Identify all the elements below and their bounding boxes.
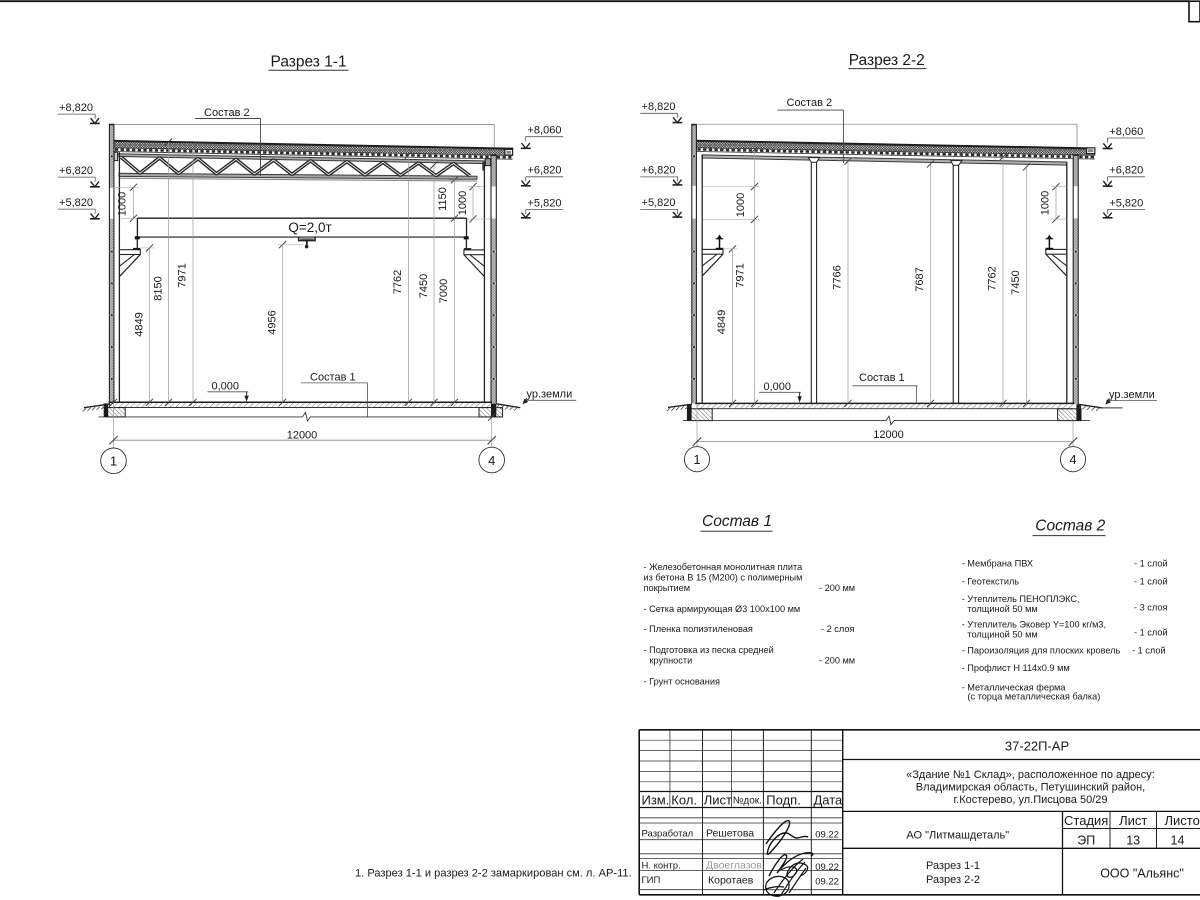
svg-text:№док.: №док. [733,796,762,807]
svg-text:из бетона В 15 (М200) с полиме: из бетона В 15 (М200) с полимерным [644,573,803,583]
svg-text:7971: 7971 [177,263,189,287]
svg-text:+5,820: +5,820 [528,197,562,209]
svg-text:толщиной 50 мм: толщиной 50 мм [967,630,1037,640]
svg-text:+8,060: +8,060 [1109,126,1143,138]
svg-text:7450: 7450 [418,274,430,298]
svg-text:- 3 слоя: - 3 слоя [1134,603,1167,613]
svg-text:ур.земли: ур.земли [527,389,573,401]
svg-text:7687: 7687 [914,267,926,291]
svg-text:Состав 1: Состав 1 [702,513,772,530]
svg-text:Разрез 1-1: Разрез 1-1 [926,860,980,872]
svg-text:7450: 7450 [1010,270,1022,294]
svg-text:Состав 2: Состав 2 [787,97,833,109]
svg-text:- 200 мм: - 200 мм [819,656,855,666]
svg-text:(с торца металлическая балка): (с торца металлическая балка) [967,692,1100,702]
svg-text:Решетова: Решетова [706,827,754,839]
svg-text:Кол.: Кол. [671,792,697,807]
svg-text:Лист: Лист [1119,813,1147,828]
svg-text:Состав 2: Состав 2 [204,107,250,119]
svg-text:Разрез 1-1: Разрез 1-1 [271,54,347,71]
svg-text:Листов: Листов [1165,813,1200,828]
svg-text:Разрез 2-2: Разрез 2-2 [926,874,980,886]
svg-text:г.Костерево, ул.Писцова 50/29: г.Костерево, ул.Писцова 50/29 [954,794,1108,806]
svg-text:Н. контр.: Н. контр. [642,861,681,872]
svg-text:Разработал: Разработал [642,828,694,839]
svg-text:покрытием: покрытием [644,583,691,593]
svg-text:Лист: Лист [704,792,732,807]
svg-text:- Пленка полиэтиленовая: - Пленка полиэтиленовая [644,624,753,634]
svg-text:14: 14 [1171,833,1185,847]
svg-text:- 1 слой: - 1 слой [1134,577,1168,587]
svg-text:Q=2,0т: Q=2,0т [288,220,331,235]
svg-text:09.22: 09.22 [815,876,839,887]
svg-text:ур.земли: ур.земли [1109,389,1155,401]
svg-text:+8,060: +8,060 [528,125,562,137]
svg-text:- 2 слоя: - 2 слоя [821,624,854,634]
svg-text:Владимирская область, Петушинс: Владимирская область, Петушинский район, [916,781,1145,793]
svg-text:+5,820: +5,820 [642,197,676,209]
svg-text:ГИП: ГИП [642,875,661,886]
svg-text:1150: 1150 [437,187,449,211]
svg-text:- Сетка армирующая Ø3 100x100: - Сетка армирующая Ø3 100x100 мм [644,604,801,614]
svg-text:+6,820: +6,820 [528,165,562,177]
svg-text:4956: 4956 [267,310,279,334]
svg-text:0,000: 0,000 [212,380,240,392]
svg-text:- Утеплитель ПЕНОПЛЭКС,: - Утеплитель ПЕНОПЛЭКС, [962,594,1080,604]
svg-text:+6,820: +6,820 [59,165,93,177]
svg-text:7000: 7000 [438,279,450,303]
svg-text:Состав 2: Состав 2 [1035,517,1105,534]
svg-text:Двоеглазов: Двоеглазов [706,860,762,872]
svg-text:4: 4 [1069,452,1076,467]
svg-text:крупности: крупности [650,656,693,666]
svg-text:+6,820: +6,820 [642,165,676,177]
svg-text:7762: 7762 [987,266,999,290]
svg-text:Дата: Дата [814,792,844,807]
svg-text:- 1 слой: - 1 слой [1134,559,1168,569]
svg-text:7766: 7766 [832,265,844,289]
svg-text:- Пароизоляция для плоских кро: - Пароизоляция для плоских кровель [962,646,1121,656]
svg-text:+5,820: +5,820 [1109,197,1143,209]
svg-text:4849: 4849 [716,310,728,334]
svg-text:Коротаев: Коротаев [708,874,754,886]
svg-text:09.22: 09.22 [815,829,839,840]
svg-text:- 1 слой: - 1 слой [1132,646,1166,656]
svg-text:12000: 12000 [873,429,904,441]
svg-text:- 1 слой: - 1 слой [1134,628,1168,638]
svg-text:Разрез 2-2: Разрез 2-2 [849,52,925,69]
svg-text:1: 1 [693,452,700,467]
svg-text:1000: 1000 [117,192,129,216]
svg-text:толщиной 50 мм: толщиной 50 мм [967,604,1037,614]
svg-text:АО "Литмашдеталь": АО "Литмашдеталь" [906,829,1009,841]
svg-text:«Здание №1 Склад», расположенн: «Здание №1 Склад», расположенное по адре… [906,769,1155,781]
svg-text:- Подготовка из песка средней: - Подготовка из песка средней [644,645,774,655]
svg-text:+6,820: +6,820 [1109,165,1143,177]
svg-text:- Грунт основания: - Грунт основания [644,677,720,687]
svg-text:+8,820: +8,820 [59,102,93,114]
svg-text:8150: 8150 [152,276,164,300]
svg-text:ООО "Альянс": ООО "Альянс" [1100,867,1184,881]
svg-text:- 200 мм: - 200 мм [819,583,855,593]
svg-text:ЭП: ЭП [1077,833,1095,847]
svg-text:- Мембрана ПВХ: - Мембрана ПВХ [962,559,1033,569]
svg-text:4: 4 [488,453,495,468]
svg-text:Изм.: Изм. [642,792,670,807]
svg-text:7971: 7971 [735,263,747,287]
svg-text:- Геотекстиль: - Геотекстиль [962,577,1020,587]
svg-text:0,000: 0,000 [764,381,792,393]
svg-text:Стадия: Стадия [1064,813,1108,828]
svg-text:1000: 1000 [1040,191,1052,215]
svg-text:1. Разрез 1-1 и разрез 2-2 зам: 1. Разрез 1-1 и разрез 2-2 замаркирован … [355,868,632,880]
svg-text:1000: 1000 [457,191,469,215]
svg-text:7762: 7762 [392,270,404,294]
svg-text:1000: 1000 [735,193,747,217]
svg-text:13: 13 [1126,833,1140,847]
svg-text:12000: 12000 [287,430,318,442]
svg-text:- Железобетонная монолитная п: - Железобетонная монолитная плита [644,562,804,572]
svg-text:Состав 1: Состав 1 [859,372,905,384]
svg-text:Подп.: Подп. [766,792,801,807]
svg-text:1: 1 [110,454,117,469]
svg-text:- Профлист Н 114x0.9 мм: - Профлист Н 114x0.9 мм [962,663,1070,673]
svg-text:4849: 4849 [133,312,145,336]
svg-text:+8,820: +8,820 [642,101,676,113]
svg-text:Состав 1: Состав 1 [310,372,356,384]
svg-text:- Утеплитель Эковер Y=100 кг/м: - Утеплитель Эковер Y=100 кг/м3, [962,620,1106,630]
svg-text:09.22: 09.22 [815,862,839,873]
svg-text:+5,820: +5,820 [59,197,93,209]
svg-text:37-22П-АР: 37-22П-АР [1005,739,1069,754]
